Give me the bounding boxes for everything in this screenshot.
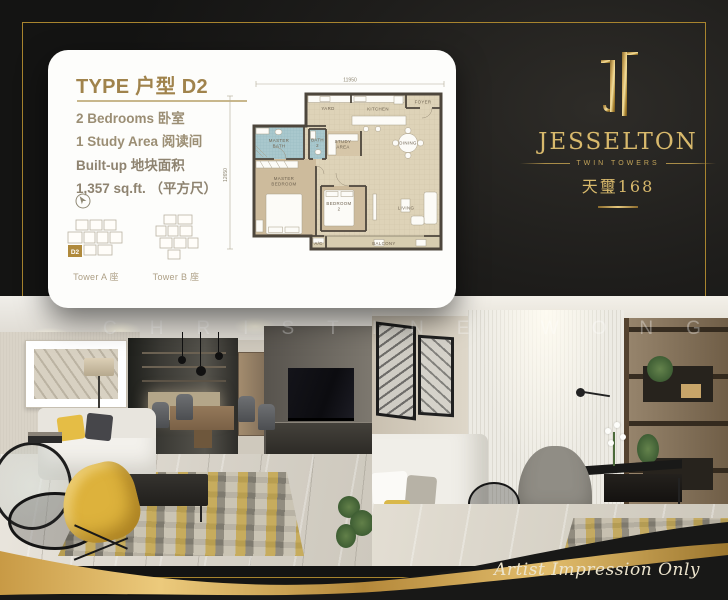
- brand-chinese-name: 天璽168: [520, 173, 716, 197]
- subtitle-line: [520, 163, 570, 164]
- room-label-ac: A/C: [314, 241, 322, 246]
- dim-left-label: 12650: [223, 168, 229, 182]
- room-label-dining: DINING: [399, 141, 417, 146]
- bottom-wave-band: [0, 485, 728, 600]
- orchid-stem: [613, 432, 615, 466]
- artwork-frame: [418, 335, 454, 418]
- keyplan-unit-badge: D2: [71, 249, 80, 256]
- room-label-bath2: BATH: [311, 138, 324, 143]
- keyplan-tower-b: Tower B 座: [152, 214, 200, 283]
- svg-text:BEDROOM: BEDROOM: [271, 182, 296, 187]
- kitchen-shelves: [142, 352, 226, 354]
- floor-lamp-shade: [84, 358, 114, 376]
- brochure-poster: CHRISTINE WONG TYPE 户型 D2 2 Bedrooms 卧室 …: [0, 0, 728, 600]
- floor-plan: 11950 12650: [220, 74, 448, 270]
- brand-subtitle: TWIN TOWERS: [576, 160, 659, 167]
- pendant-bulb: [196, 366, 206, 376]
- shelf-box: [681, 384, 701, 398]
- dark-cushion: [85, 413, 114, 442]
- agent-watermark: CHRISTINE WONG: [103, 318, 728, 340]
- builtup-label: Built-up 地块面积: [76, 154, 185, 174]
- orchid-flower: [620, 434, 626, 440]
- room-label-foyer: FOYER: [415, 100, 432, 105]
- tower-a-floorplate-icon: D2: [66, 219, 126, 260]
- dining-chair: [238, 396, 255, 422]
- room-label-yard: YARD: [321, 106, 334, 111]
- orchid-flower: [605, 428, 611, 434]
- dim-top-label: 11950: [343, 78, 357, 84]
- dining-chair: [176, 394, 193, 420]
- brand-subtitle-row: TWIN TOWERS: [520, 160, 716, 167]
- svg-text:2: 2: [338, 207, 341, 212]
- room-label-master-bedroom: MASTER: [274, 176, 294, 181]
- keyplan-tower-a: D2 Tower A 座: [66, 219, 126, 283]
- dining-chair: [258, 404, 275, 430]
- keyplan-row: D2 Tower A 座 Tower B 座: [66, 214, 200, 283]
- room-label-living: LIVING: [398, 206, 415, 211]
- room-label-kitchen: KITCHEN: [367, 107, 389, 112]
- unit-info-card: TYPE 户型 D2 2 Bedrooms 卧室 1 Study Area 阅读…: [48, 50, 456, 308]
- svg-text:AREA: AREA: [336, 145, 349, 150]
- jt-monogram-icon: [589, 50, 647, 120]
- tv-screen: [288, 368, 354, 421]
- brand-name: JESSELTON: [520, 129, 716, 155]
- feature-bedrooms: 2 Bedrooms 卧室: [76, 107, 185, 127]
- pendant-bulb: [215, 352, 223, 360]
- svg-text:2: 2: [316, 143, 319, 148]
- compass-icon: [74, 192, 92, 210]
- room-label-balcony: BALCONY: [372, 241, 395, 246]
- orchid-flower: [608, 440, 614, 446]
- feature-study-area: 1 Study Area 阅读间: [76, 130, 202, 150]
- tower-b-floorplate-icon: [152, 214, 200, 260]
- tower-a-label: Tower A 座: [66, 270, 126, 283]
- logo-gold-rule: [598, 206, 638, 208]
- orchid-flower: [614, 422, 620, 428]
- builtup-value: 1,357 sq.ft. （平方尺）: [76, 177, 217, 197]
- room-label-master-bath: MASTER: [269, 138, 289, 143]
- unit-type-title: TYPE 户型 D2: [76, 70, 208, 99]
- brand-logo: JESSELTON TWIN TOWERS 天璽168: [520, 50, 716, 208]
- shelf-plant: [647, 356, 673, 382]
- room-label-study: STUDY: [335, 139, 352, 144]
- svg-text:BATH: BATH: [273, 144, 286, 149]
- artist-impression-note: Artist Impression Only: [494, 560, 700, 580]
- subtitle-line: [666, 163, 716, 164]
- books-stack: [28, 436, 62, 443]
- tower-b-label: Tower B 座: [152, 270, 200, 283]
- room-label-bedroom2: BEDROOM: [326, 201, 351, 206]
- shelf-plant: [637, 434, 659, 464]
- pendant-bulb: [178, 356, 186, 364]
- dining-table-base: [194, 430, 212, 448]
